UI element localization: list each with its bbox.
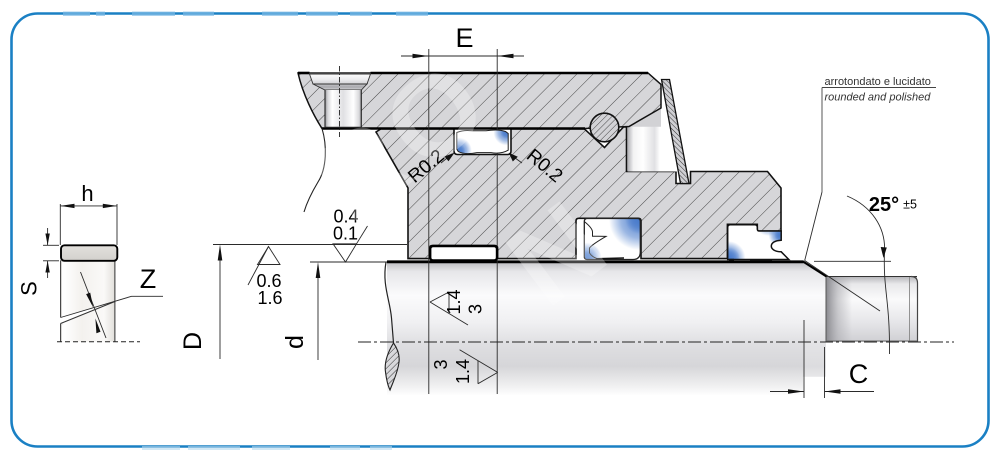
svg-text:±5: ±5 bbox=[903, 198, 917, 212]
svg-text:S: S bbox=[17, 281, 42, 296]
svg-text:h: h bbox=[81, 181, 93, 206]
svg-text:25°: 25° bbox=[869, 194, 899, 216]
svg-text:arrotondato e lucidato: arrotondato e lucidato bbox=[825, 76, 931, 88]
svg-text:C: C bbox=[849, 359, 869, 389]
svg-text:rounded and polished: rounded and polished bbox=[825, 92, 932, 104]
svg-text:3: 3 bbox=[466, 304, 486, 314]
svg-text:3: 3 bbox=[431, 359, 451, 369]
svg-text:D: D bbox=[179, 332, 207, 350]
svg-text:d: d bbox=[281, 335, 309, 349]
svg-text:E: E bbox=[455, 23, 473, 53]
svg-text:1.4: 1.4 bbox=[453, 359, 473, 384]
svg-text:Z: Z bbox=[140, 264, 157, 294]
svg-text:1.6: 1.6 bbox=[257, 288, 282, 308]
svg-text:1.4: 1.4 bbox=[444, 289, 464, 314]
